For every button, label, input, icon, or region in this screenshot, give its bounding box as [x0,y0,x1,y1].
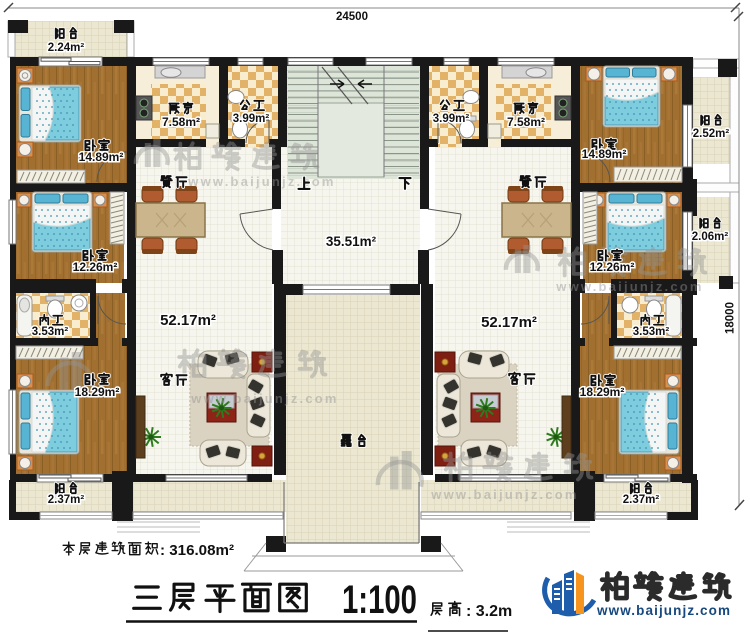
svg-text:www.baijunjz.com: www.baijunjz.com [596,603,731,618]
svg-text:www.baijunjz.com: www.baijunjz.com [430,487,578,502]
svg-text:14.89m²: 14.89m² [582,147,627,161]
svg-text:18000: 18000 [725,302,737,334]
svg-text:: 316.08m²: : 316.08m² [160,542,234,559]
svg-text:1:100: 1:100 [342,578,417,622]
svg-text:52.17m²: 52.17m² [160,312,216,329]
svg-text:14.89m²: 14.89m² [79,150,124,164]
svg-text:2.37m²: 2.37m² [48,494,85,506]
svg-text:12.26m²: 12.26m² [73,260,118,274]
svg-text:52.17m²: 52.17m² [481,314,537,331]
svg-text:18.29m²: 18.29m² [580,385,625,399]
svg-text:www.baijunjz.com: www.baijunjz.com [555,279,703,294]
svg-text:www.baijunjz.com: www.baijunjz.com [187,174,335,189]
svg-text:2.37m²: 2.37m² [623,494,660,506]
svg-text:12.26m²: 12.26m² [590,260,635,274]
svg-text:24500: 24500 [336,11,368,23]
svg-text:7.58m²: 7.58m² [507,115,545,129]
svg-text:35.51m²: 35.51m² [326,234,377,249]
svg-text:3.53m²: 3.53m² [32,326,69,338]
svg-text:2.06m²: 2.06m² [692,231,729,243]
svg-text:: 3.2m: : 3.2m [466,603,512,620]
svg-text:18.29m²: 18.29m² [75,385,120,399]
svg-text:2.52m²: 2.52m² [693,128,730,140]
svg-text:2.24m²: 2.24m² [48,42,85,54]
svg-text:3.99m²: 3.99m² [433,113,470,125]
svg-text:3.99m²: 3.99m² [233,113,270,125]
svg-text:www.baijunjz.com: www.baijunjz.com [190,391,338,406]
svg-text:7.58m²: 7.58m² [162,115,200,129]
svg-text:3.53m²: 3.53m² [633,326,670,338]
